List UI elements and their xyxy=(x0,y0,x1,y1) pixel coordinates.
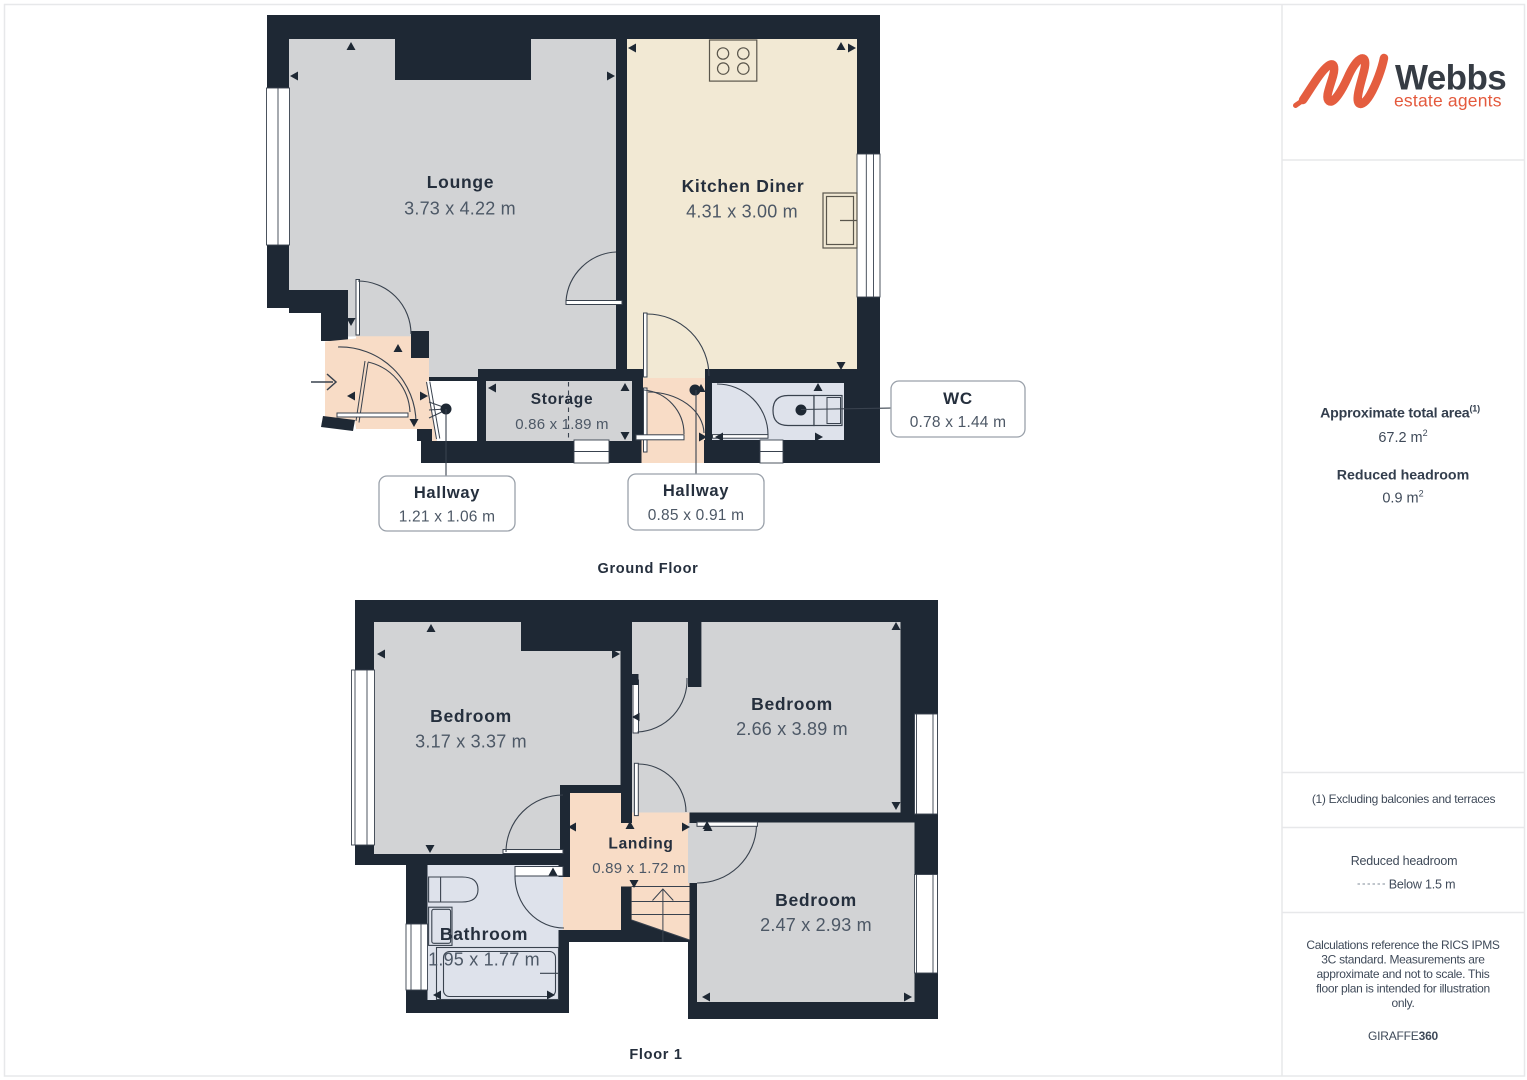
svg-text:0.86 x 1.89 m: 0.86 x 1.89 m xyxy=(515,416,609,433)
svg-text:67.2 m2: 67.2 m2 xyxy=(1378,428,1427,446)
svg-text:Landing: Landing xyxy=(608,836,673,853)
svg-text:0.9 m2: 0.9 m2 xyxy=(1382,489,1423,507)
svg-text:only.: only. xyxy=(1392,996,1415,1010)
svg-text:3.73 x 4.22 m: 3.73 x 4.22 m xyxy=(404,199,516,219)
svg-text:3.17 x 3.37 m: 3.17 x 3.37 m xyxy=(415,732,527,752)
svg-text:Bedroom: Bedroom xyxy=(430,706,512,726)
svg-text:0.89 x 1.72 m: 0.89 x 1.72 m xyxy=(592,860,686,877)
svg-text:Lounge: Lounge xyxy=(427,172,494,192)
svg-text:3C standard. Measurements are: 3C standard. Measurements are xyxy=(1321,953,1485,967)
svg-text:Reduced headroom: Reduced headroom xyxy=(1351,854,1458,868)
svg-text:Bedroom: Bedroom xyxy=(775,890,857,910)
svg-text:WC: WC xyxy=(943,389,973,408)
svg-text:Storage: Storage xyxy=(531,391,594,408)
svg-text:Bedroom: Bedroom xyxy=(751,694,833,714)
svg-text:(1) Excluding balconies and te: (1) Excluding balconies and terraces xyxy=(1312,792,1496,806)
svg-text:Ground Floor: Ground Floor xyxy=(597,561,698,577)
svg-text:1.95 x 1.77 m: 1.95 x 1.77 m xyxy=(428,950,540,970)
svg-text:Below 1.5 m: Below 1.5 m xyxy=(1389,878,1456,892)
svg-text:4.31 x 3.00 m: 4.31 x 3.00 m xyxy=(686,202,798,222)
svg-text:0.85 x 0.91 m: 0.85 x 0.91 m xyxy=(648,507,745,524)
svg-text:Approximate total area(1): Approximate total area(1) xyxy=(1320,404,1480,422)
svg-text:Reduced headroom: Reduced headroom xyxy=(1337,468,1469,484)
svg-text:Hallway: Hallway xyxy=(663,482,729,500)
svg-text:Kitchen Diner: Kitchen Diner xyxy=(682,176,805,196)
svg-text:Calculations reference the RIC: Calculations reference the RICS IPMS xyxy=(1306,938,1500,952)
svg-text:Hallway: Hallway xyxy=(414,484,480,502)
svg-text:GIRAFFE360: GIRAFFE360 xyxy=(1368,1029,1439,1043)
svg-text:approximate and not to scale.: approximate and not to scale. This xyxy=(1316,967,1489,981)
svg-text:0.78 x 1.44 m: 0.78 x 1.44 m xyxy=(910,414,1007,431)
svg-text:floor plan is intended for ill: floor plan is intended for illustration xyxy=(1316,982,1490,996)
svg-text:2.66 x 3.89 m: 2.66 x 3.89 m xyxy=(736,719,848,739)
svg-text:Bathroom: Bathroom xyxy=(440,924,528,944)
svg-text:2.47 x 2.93 m: 2.47 x 2.93 m xyxy=(760,915,872,935)
svg-text:estate agents: estate agents xyxy=(1394,91,1502,111)
svg-text:Floor 1: Floor 1 xyxy=(629,1047,682,1063)
svg-text:1.21 x 1.06 m: 1.21 x 1.06 m xyxy=(399,509,496,526)
